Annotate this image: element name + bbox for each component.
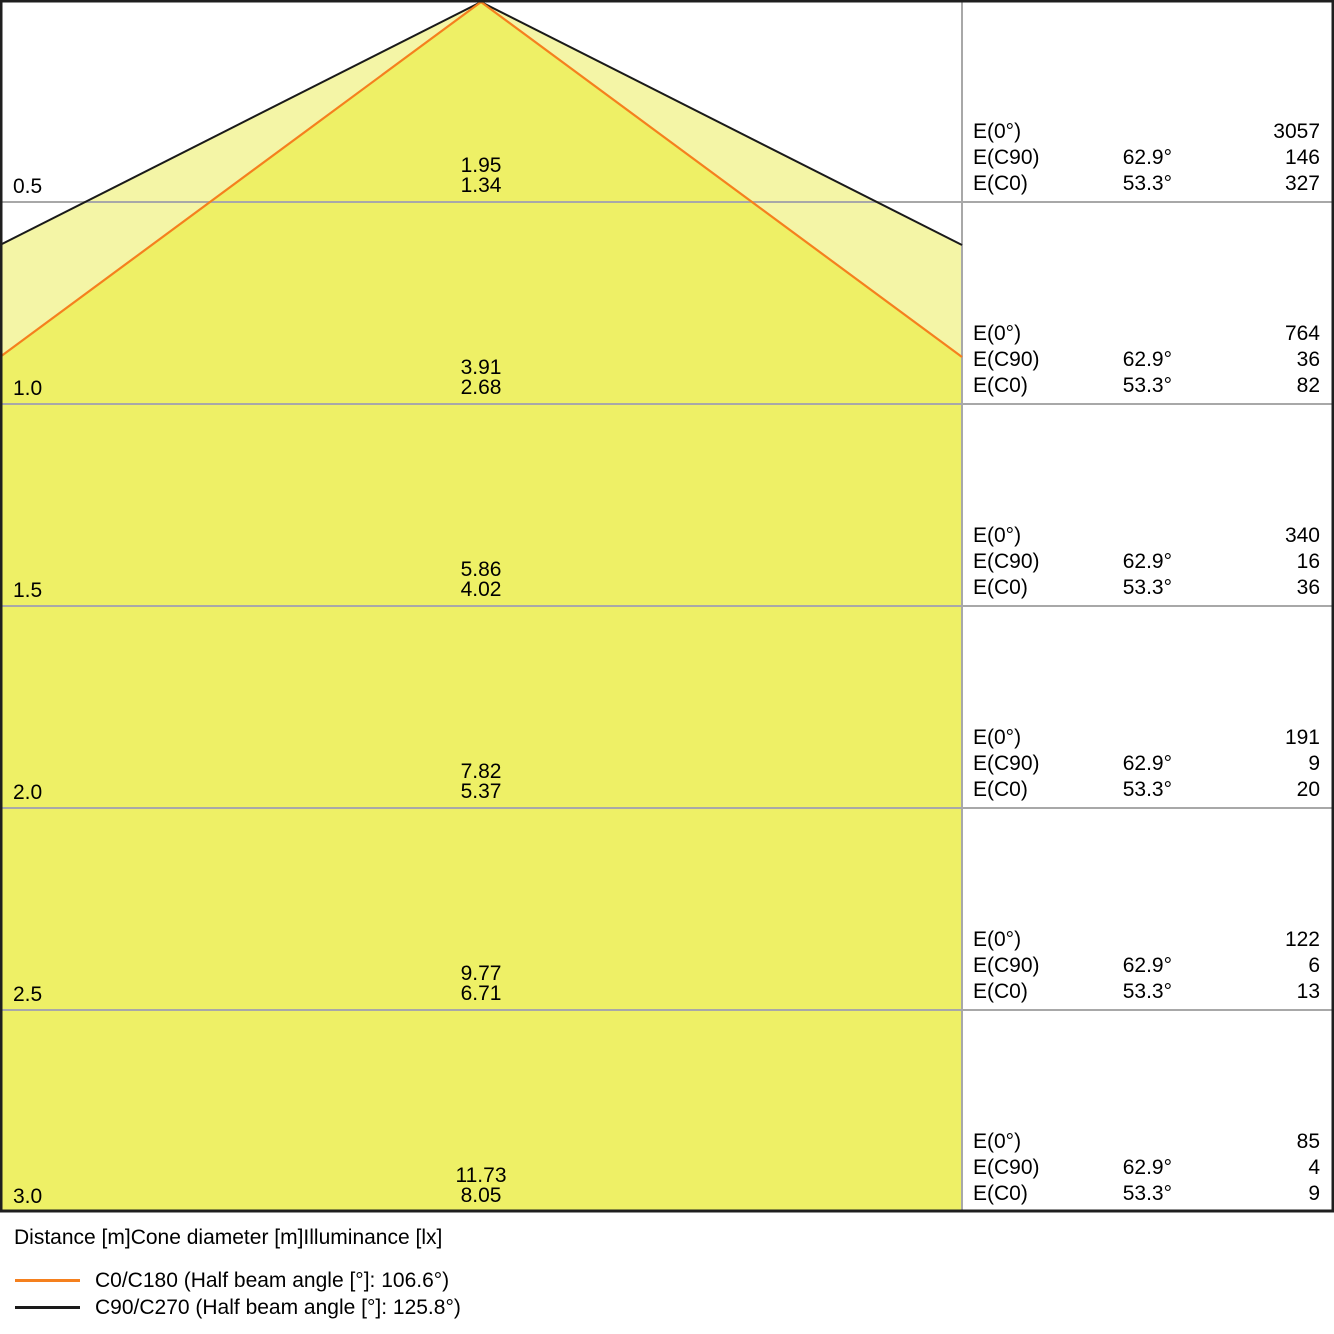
e0-line: E(0°)764 xyxy=(973,321,1320,347)
ec90-line: E(C90)62.9°36 xyxy=(973,347,1320,373)
ec90-line: E(C90)62.9°9 xyxy=(973,751,1320,777)
ec90-angle: 62.9° xyxy=(1120,549,1172,575)
ec0-label: E(C0) xyxy=(973,575,1120,601)
distance-label: 2.5 xyxy=(13,984,42,1006)
ec0-label: E(C0) xyxy=(973,777,1120,803)
ec0-line: E(C0)53.3°20 xyxy=(973,777,1320,803)
ec90-angle: 62.9° xyxy=(1120,1155,1172,1181)
ec0-label: E(C0) xyxy=(973,1181,1120,1207)
e0-line: E(0°)85 xyxy=(973,1129,1320,1155)
c90-line-swatch xyxy=(15,1306,80,1309)
e0-angle xyxy=(1120,927,1172,953)
e0-value: 122 xyxy=(1172,927,1320,953)
e0-line: E(0°)122 xyxy=(973,927,1320,953)
ec0-label: E(C0) xyxy=(973,979,1120,1005)
legend-entry-c0: C0/C180 (Half beam angle [°]: 106.6°) xyxy=(0,1268,600,1294)
ec90-angle: 62.9° xyxy=(1120,347,1172,373)
cone-diameter-c90: 1.95 xyxy=(371,156,591,176)
table-row: 2.5 9.77 6.71 E(0°)122 E(C90)62.9°6 E(C0… xyxy=(0,808,1334,1010)
legend-label-c0: C0/C180 (Half beam angle [°]: 106.6°) xyxy=(95,1268,449,1294)
illuminance-values: E(0°)85 E(C90)62.9°4 E(C0)53.3°9 xyxy=(973,1129,1320,1207)
ec0-angle: 53.3° xyxy=(1120,575,1172,601)
distance-label: 1.5 xyxy=(13,580,42,602)
ec90-label: E(C90) xyxy=(973,145,1120,171)
ec0-angle: 53.3° xyxy=(1120,373,1172,399)
ec90-label: E(C90) xyxy=(973,549,1120,575)
ec90-value: 9 xyxy=(1172,751,1320,777)
cone-diameter-c0: 2.68 xyxy=(371,378,591,398)
ec90-angle: 62.9° xyxy=(1120,953,1172,979)
table-row: 1.5 5.86 4.02 E(0°)340 E(C90)62.9°16 E(C… xyxy=(0,404,1334,606)
distance-label: 3.0 xyxy=(13,1186,42,1208)
e0-label: E(0°) xyxy=(973,321,1120,347)
e0-value: 764 xyxy=(1172,321,1320,347)
ec0-line: E(C0)53.3°82 xyxy=(973,373,1320,399)
ec90-line: E(C90)62.9°146 xyxy=(973,145,1320,171)
e0-angle xyxy=(1120,1129,1172,1155)
e0-label: E(0°) xyxy=(973,523,1120,549)
e0-label: E(0°) xyxy=(973,1129,1120,1155)
illuminance-values: E(0°)3057 E(C90)62.9°146 E(C0)53.3°327 xyxy=(973,119,1320,197)
cone-diameter-values: 9.77 6.71 xyxy=(371,964,591,1004)
distance-label: 1.0 xyxy=(13,378,42,400)
ec0-value: 82 xyxy=(1172,373,1320,399)
e0-line: E(0°)340 xyxy=(973,523,1320,549)
ec90-value: 36 xyxy=(1172,347,1320,373)
legend-label-c90: C90/C270 (Half beam angle [°]: 125.8°) xyxy=(95,1295,461,1321)
ec0-label: E(C0) xyxy=(973,373,1120,399)
distance-label: 0.5 xyxy=(13,176,42,198)
table-row: 0.5 1.95 1.34 E(0°)3057 E(C90)62.9°146 E… xyxy=(0,0,1334,202)
ec0-value: 9 xyxy=(1172,1181,1320,1207)
e0-line: E(0°)191 xyxy=(973,725,1320,751)
ec90-line: E(C90)62.9°4 xyxy=(973,1155,1320,1181)
e0-label: E(0°) xyxy=(973,725,1120,751)
ec90-angle: 62.9° xyxy=(1120,751,1172,777)
e0-value: 191 xyxy=(1172,725,1320,751)
cone-diameter-c90: 11.73 xyxy=(371,1166,591,1186)
table-row: 3.0 11.73 8.05 E(0°)85 E(C90)62.9°4 E(C0… xyxy=(0,1010,1334,1212)
cone-diameter-c90: 5.86 xyxy=(371,560,591,580)
ec90-value: 16 xyxy=(1172,549,1320,575)
ec90-line: E(C90)62.9°6 xyxy=(973,953,1320,979)
ec90-value: 6 xyxy=(1172,953,1320,979)
illuminance-values: E(0°)122 E(C90)62.9°6 E(C0)53.3°13 xyxy=(973,927,1320,1005)
cone-diameter-values: 7.82 5.37 xyxy=(371,762,591,802)
ec0-value: 36 xyxy=(1172,575,1320,601)
e0-angle xyxy=(1120,725,1172,751)
ec0-line: E(C0)53.3°13 xyxy=(973,979,1320,1005)
e0-angle xyxy=(1120,321,1172,347)
e0-value: 3057 xyxy=(1172,119,1320,145)
e0-angle xyxy=(1120,523,1172,549)
ec90-label: E(C90) xyxy=(973,347,1120,373)
ec90-value: 4 xyxy=(1172,1155,1320,1181)
cone-diameter-c0: 1.34 xyxy=(371,176,591,196)
cone-diameter-c0: 8.05 xyxy=(371,1186,591,1206)
illuminance-values: E(0°)191 E(C90)62.9°9 E(C0)53.3°20 xyxy=(973,725,1320,803)
ec0-value: 13 xyxy=(1172,979,1320,1005)
ec0-angle: 53.3° xyxy=(1120,171,1172,197)
ec0-angle: 53.3° xyxy=(1120,777,1172,803)
cone-diameter-c0: 6.71 xyxy=(371,984,591,1004)
e0-value: 340 xyxy=(1172,523,1320,549)
ec90-line: E(C90)62.9°16 xyxy=(973,549,1320,575)
ec0-line: E(C0)53.3°327 xyxy=(973,171,1320,197)
illuminance-values: E(0°)764 E(C90)62.9°36 E(C0)53.3°82 xyxy=(973,321,1320,399)
e0-label: E(0°) xyxy=(973,119,1120,145)
cone-diameter-c90: 9.77 xyxy=(371,964,591,984)
ec0-value: 20 xyxy=(1172,777,1320,803)
distance-label: 2.0 xyxy=(13,782,42,804)
cone-diameter-c90: 7.82 xyxy=(371,762,591,782)
ec90-label: E(C90) xyxy=(973,1155,1120,1181)
ec0-line: E(C0)53.3°36 xyxy=(973,575,1320,601)
cone-diameter-values: 11.73 8.05 xyxy=(371,1166,591,1206)
ec90-label: E(C90) xyxy=(973,953,1120,979)
table-row: 2.0 7.82 5.37 E(0°)191 E(C90)62.9°9 E(C0… xyxy=(0,606,1334,808)
c0-line-swatch xyxy=(15,1279,80,1282)
light-cone-diagram: 0.5 1.95 1.34 E(0°)3057 E(C90)62.9°146 E… xyxy=(0,0,1334,1334)
cone-diameter-c0: 4.02 xyxy=(371,580,591,600)
ec90-label: E(C90) xyxy=(973,751,1120,777)
e0-line: E(0°)3057 xyxy=(973,119,1320,145)
cone-diameter-values: 5.86 4.02 xyxy=(371,560,591,600)
cone-diameter-c0: 5.37 xyxy=(371,782,591,802)
cone-diameter-c90: 3.91 xyxy=(371,358,591,378)
e0-value: 85 xyxy=(1172,1129,1320,1155)
ec0-line: E(C0)53.3°9 xyxy=(973,1181,1320,1207)
cone-diameter-values: 1.95 1.34 xyxy=(371,156,591,196)
ec90-angle: 62.9° xyxy=(1120,145,1172,171)
e0-label: E(0°) xyxy=(973,927,1120,953)
ec0-angle: 53.3° xyxy=(1120,979,1172,1005)
illuminance-values: E(0°)340 E(C90)62.9°16 E(C0)53.3°36 xyxy=(973,523,1320,601)
ec90-value: 146 xyxy=(1172,145,1320,171)
table-row: 1.0 3.91 2.68 E(0°)764 E(C90)62.9°36 E(C… xyxy=(0,202,1334,404)
ec0-label: E(C0) xyxy=(973,171,1120,197)
ec0-value: 327 xyxy=(1172,171,1320,197)
ec0-angle: 53.3° xyxy=(1120,1181,1172,1207)
legend-entry-c90: C90/C270 (Half beam angle [°]: 125.8°) xyxy=(0,1295,600,1321)
e0-angle xyxy=(1120,119,1172,145)
cone-diameter-values: 3.91 2.68 xyxy=(371,358,591,398)
axis-units-caption: Distance [m]Cone diameter [m]Illuminance… xyxy=(14,1227,442,1249)
